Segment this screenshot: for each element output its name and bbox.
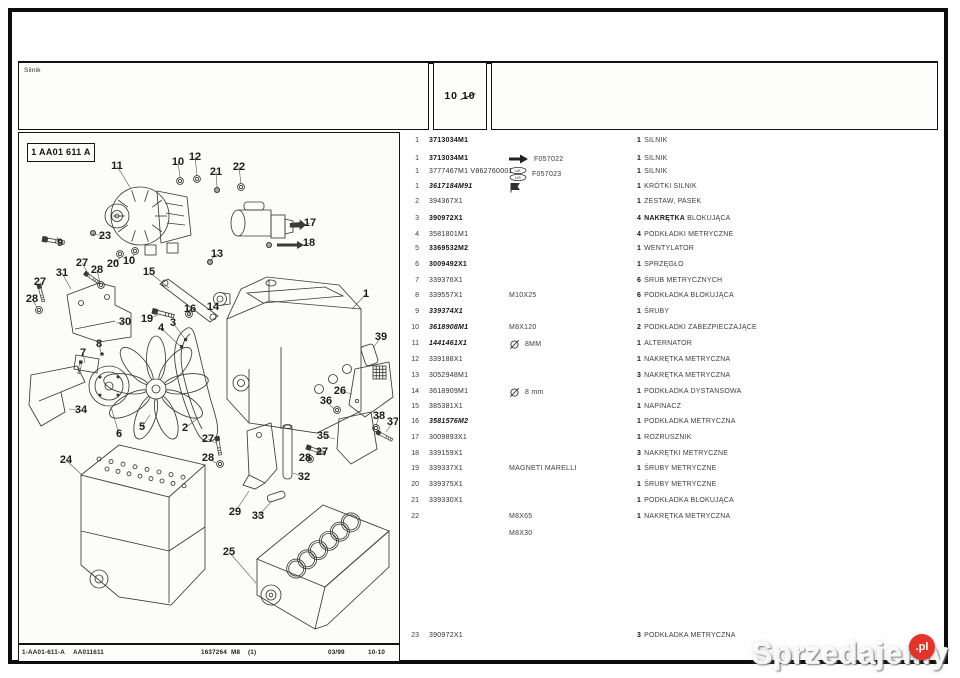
item-number: 5 (405, 244, 419, 253)
description-text: PODKŁADKA DYSTANSOWA (644, 388, 741, 395)
spec-text: M8X30 (509, 529, 532, 538)
quantity: 1 (637, 497, 641, 504)
item-number: 16 (405, 417, 419, 426)
description-cell: 3NAKRĘTKA METRYCZNA (637, 371, 730, 380)
quantity: 6 (637, 277, 641, 284)
quantity: 1 (637, 245, 641, 252)
part-number: 339375X1 (429, 480, 463, 489)
item-number: 2 (405, 197, 419, 206)
callout-number: 27 (34, 276, 46, 288)
callout-number: 20 (107, 258, 119, 270)
callout-number: 3 (170, 317, 176, 329)
diagram-ref-label: 1 AA01 611 A (27, 143, 95, 162)
callout-number: 24 (60, 454, 73, 466)
parts-table: 13713034M11SILNIK13713034M1F0570221SILNI… (405, 0, 950, 678)
part-number: 3369532M2 (429, 244, 468, 253)
callout-number: 15 (143, 266, 155, 278)
part-number: 390972X1 (429, 214, 463, 223)
quantity: 1 (637, 418, 641, 425)
description-text: ŚRUBY METRYCZNE (644, 465, 716, 472)
description-cell: 1ŚRUBY (637, 307, 669, 316)
item-number: 15 (405, 402, 419, 411)
part-number: 339337X1 (429, 464, 463, 473)
part-number: 3777467M1 V862760001 (429, 167, 513, 176)
svg-text:US: US (515, 175, 521, 180)
uk-us-market-icon: UKUS (509, 167, 527, 181)
spec-text: F057023 (532, 170, 561, 179)
spec-text: M8X120 (509, 323, 537, 332)
description-text: ŚRUBY (644, 308, 669, 315)
description-text: SILNIK (644, 155, 667, 162)
description-cell: 4PODKŁADKI METRYCZNE (637, 230, 733, 239)
quantity: 1 (637, 356, 641, 363)
callout-number: 2 (182, 422, 188, 434)
callout-number: 28 (26, 293, 38, 305)
part-number: 385381X1 (429, 402, 463, 411)
description-text: NAKRĘTKA METRYCZNA (644, 513, 730, 520)
quantity: 6 (637, 292, 641, 299)
item-number: 1 (405, 167, 419, 176)
description-cell: 1PODKŁADKA METRYCZNA (637, 417, 736, 426)
description-cell: 1PODKŁADKA DYSTANSOWA (637, 387, 741, 396)
description-text: NAKRĘTKA METRYCZNA (644, 372, 730, 379)
part-number: 390972X1 (429, 631, 463, 640)
item-number: 4 (405, 230, 419, 239)
spec-cell: M8X65 (509, 512, 532, 521)
part-number: 394367X1 (429, 197, 463, 206)
description-text: ZESTAW, PASEK (644, 198, 701, 205)
item-number: 3 (405, 214, 419, 223)
item-number: 14 (405, 387, 419, 396)
description-strong: NAKRĘTKA (644, 215, 685, 222)
footer-ref2: AA011611 (73, 649, 104, 656)
footer-strip: 1-AA01-611-A AA011611 1637264 M8 (1) 03/… (18, 644, 400, 661)
callout-number: 7 (80, 347, 86, 359)
description-cell: 1SILNIK (637, 136, 667, 145)
callout-number: 25 (223, 546, 235, 558)
part-number: 339376X1 (429, 276, 463, 285)
quantity: 1 (637, 465, 641, 472)
description-text: PODKŁADKA BLOKUJĄCA (644, 497, 734, 504)
quantity: 4 (637, 215, 641, 222)
description-text: NAKRĘTKI METRYCZNE (644, 450, 728, 457)
spec-cell: 8MM (509, 339, 541, 350)
callout-number: 8 (96, 338, 102, 350)
description-cell: 1ROZRUSZNIK (637, 433, 692, 442)
callout-number: 32 (298, 471, 310, 483)
callout-number: 10 (172, 156, 184, 168)
description-cell: 1KRÓTKI SILNIK (637, 182, 697, 191)
quantity: 3 (637, 632, 641, 639)
description-cell: 2PODKŁADKI ZABEZPIECZAJĄCE (637, 323, 757, 332)
callout-number: 27 (316, 446, 328, 458)
description-text: ALTERNATOR (644, 340, 692, 347)
callout-number: 6 (116, 428, 122, 440)
part-number: 3009492X1 (429, 260, 467, 269)
part-number: 3052948M1 (429, 371, 468, 380)
description-cell: 3NAKRĘTKI METRYCZNE (637, 449, 728, 458)
spec-cell: MAGNETI MARELLI (509, 464, 577, 473)
footer-date: 03/99 (328, 649, 345, 656)
svg-text:UK: UK (515, 168, 521, 173)
description-text: PODKŁADKI METRYCZNE (644, 231, 733, 238)
item-number: 13 (405, 371, 419, 380)
exploded-diagram-panel: 1110122122923171820102728312728151314161… (18, 132, 400, 644)
callout-number: 13 (211, 248, 223, 260)
spec-cell: M8X30 (509, 529, 532, 538)
exploded-engine-drawing: 1110122122923171820102728312728151314161… (19, 133, 398, 642)
quantity: 1 (637, 340, 641, 347)
footer-size: M8 (231, 649, 240, 656)
spec-cell: M8X120 (509, 323, 537, 332)
description-text: ŚRUBY METRYCZNE (644, 481, 716, 488)
item-number: 7 (405, 276, 419, 285)
quantity: 1 (637, 198, 641, 205)
item-number: 23 (405, 631, 419, 640)
spec-text: M10X25 (509, 291, 537, 300)
callout-number: 12 (189, 151, 201, 163)
item-number: 1 (405, 136, 419, 145)
item-number: 10 (405, 323, 419, 332)
description-cell: 6PODKŁADKA BLOKUJĄCA (637, 291, 734, 300)
description-text: SILNIK (644, 168, 667, 175)
flag-icon (509, 182, 521, 193)
spec-text: M8X65 (509, 512, 532, 521)
footer-number: 1637264 (201, 649, 227, 656)
part-number: 3617184M91 (429, 182, 472, 191)
quantity: 1 (637, 434, 641, 441)
item-number: 9 (405, 307, 419, 316)
description-cell: 1SILNIK (637, 154, 667, 163)
callout-number: 30 (119, 316, 131, 328)
description-text: SILNIK (644, 137, 667, 144)
callout-number: 21 (210, 166, 222, 178)
item-number: 1 (405, 182, 419, 191)
item-number: 8 (405, 291, 419, 300)
part-number: 339374X1 (429, 307, 463, 316)
item-number: 17 (405, 433, 419, 442)
callout-number: 28 (91, 264, 103, 276)
footer-rev: (1) (248, 649, 256, 656)
description-cell: 1SPRZĘGŁO (637, 260, 684, 269)
description-cell: 4NAKRĘTKA BLOKUJĄCA (637, 214, 731, 223)
item-number: 12 (405, 355, 419, 364)
part-number: 339159X1 (429, 449, 463, 458)
watermark-pl-badge: .pl (909, 634, 935, 660)
part-number: 3713034M1 (429, 154, 468, 163)
description-text: PODKŁADKA METRYCZNA (644, 418, 736, 425)
description-cell: 1NAKRĘTKA METRYCZNA (637, 512, 730, 521)
callout-number: 35 (317, 430, 329, 442)
description-cell: 1ZESTAW, PASEK (637, 197, 701, 206)
catalog-page: Silnik 10 10 (0, 0, 960, 678)
part-number: 1441461X1 (429, 339, 467, 348)
callout-number: 16 (184, 303, 196, 315)
description-cell: 1SILNIK (637, 167, 667, 176)
header-section-cell: Silnik (18, 62, 429, 130)
callout-number: 1 (363, 288, 369, 300)
description-cell: 1ŚRUBY METRYCZNE (637, 464, 716, 473)
quantity: 1 (637, 261, 641, 268)
quantity: 1 (637, 308, 641, 315)
quantity: 1 (637, 168, 641, 175)
description-text: WENTYLATOR (644, 245, 694, 252)
callout-number: 28 (299, 452, 311, 464)
description-text: NAPINACZ (644, 403, 681, 410)
description-text: NAKRĘTKA METRYCZNA (644, 356, 730, 363)
description-cell: 1ŚRUBY METRYCZNE (637, 480, 716, 489)
item-number: 1 (405, 154, 419, 163)
description-cell: 1PODKŁADKA BLOKUJĄCA (637, 496, 734, 505)
callout-number: 27 (76, 257, 88, 269)
callout-number: 10 (123, 255, 135, 267)
quantity: 1 (637, 137, 641, 144)
description-cell: 6ŚRUB METRYCZNYCH (637, 276, 722, 285)
callout-number: 4 (158, 322, 165, 334)
quantity: 1 (637, 481, 641, 488)
part-number: 3581801M1 (429, 230, 468, 239)
callout-number: 29 (229, 506, 241, 518)
callout-number: 33 (252, 510, 264, 522)
item-number: 20 (405, 480, 419, 489)
part-number: 339557X1 (429, 291, 463, 300)
quantity: 1 (637, 388, 641, 395)
quantity: 1 (637, 183, 641, 190)
item-number: 21 (405, 496, 419, 505)
section-label: Silnik (24, 67, 41, 74)
description-text: ŚRUB METRYCZNYCH (644, 277, 722, 284)
spec-text: 8 mm (525, 388, 544, 397)
item-number: 22 (405, 512, 419, 521)
diameter-icon (509, 339, 520, 350)
spec-cell: F057022 (509, 154, 563, 164)
description-cell: 1ALTERNATOR (637, 339, 692, 348)
diameter-icon (509, 387, 520, 398)
description-text: ROZRUSZNIK (644, 434, 692, 441)
part-number: 339188X1 (429, 355, 463, 364)
item-number: 18 (405, 449, 419, 458)
item-number: 6 (405, 260, 419, 269)
spec-text: MAGNETI MARELLI (509, 464, 577, 473)
description-text: PODKŁADKA BLOKUJĄCA (644, 292, 734, 299)
part-number: 3009893X1 (429, 433, 467, 442)
description-text: SPRZĘGŁO (644, 261, 684, 268)
callout-number: 23 (99, 230, 111, 242)
callout-number: 31 (56, 267, 68, 279)
callout-number: 36 (320, 395, 332, 407)
part-number: 3713034M1 (429, 136, 468, 145)
callout-number: 14 (207, 301, 220, 313)
description-text: KRÓTKI SILNIK (644, 183, 697, 190)
description-cell: 1NAKRĘTKA METRYCZNA (637, 355, 730, 364)
quantity: 1 (637, 513, 641, 520)
part-number: 3618909M1 (429, 387, 468, 396)
quantity: 4 (637, 231, 641, 238)
quantity: 3 (637, 372, 641, 379)
spec-cell: 8 mm (509, 387, 544, 398)
description-text: BLOKUJĄCA (685, 215, 731, 222)
callout-number: 26 (334, 385, 346, 397)
quantity: 3 (637, 450, 641, 457)
callout-number: 28 (202, 452, 214, 464)
part-number: 339330X1 (429, 496, 463, 505)
footer-page: 10-10 (368, 649, 385, 656)
quantity: 2 (637, 324, 641, 331)
footer-ref1: 1-AA01-611-A (22, 649, 65, 656)
callout-number: 18 (303, 237, 315, 249)
callout-number: 17 (304, 217, 316, 229)
callout-number: 34 (75, 404, 88, 416)
quantity: 1 (637, 155, 641, 162)
description-cell: 1NAPINACZ (637, 402, 681, 411)
description-cell: 1WENTYLATOR (637, 244, 694, 253)
callout-number: 19 (141, 313, 153, 325)
spec-cell: UKUSF057023 (509, 167, 561, 181)
part-number: 3618908M1 (429, 323, 468, 332)
callout-number: 39 (375, 331, 387, 343)
watermark: Sprzedajemy .pl (752, 636, 949, 672)
callout-number: 38 (373, 410, 385, 422)
spec-text: F057022 (534, 155, 563, 164)
spec-cell (509, 182, 521, 193)
callout-number: 5 (139, 421, 145, 433)
description-cell: 3PODKŁADKA METRYCZNA (637, 631, 736, 640)
callout-number: 9 (57, 237, 63, 249)
spec-text: 8MM (525, 340, 541, 349)
callout-number: 22 (233, 161, 245, 173)
arrow-right-icon (509, 154, 529, 164)
quantity: 1 (637, 403, 641, 410)
description-text: PODKŁADKA METRYCZNA (644, 632, 736, 639)
description-text: PODKŁADKI ZABEZPIECZAJĄCE (644, 324, 757, 331)
callout-number: 37 (387, 416, 398, 428)
spec-cell: M10X25 (509, 291, 537, 300)
part-number: 3581576M2 (429, 417, 468, 426)
callout-number: 27 (202, 433, 214, 445)
callout-number: 11 (111, 160, 123, 172)
item-number: 11 (405, 339, 419, 348)
item-number: 19 (405, 464, 419, 473)
